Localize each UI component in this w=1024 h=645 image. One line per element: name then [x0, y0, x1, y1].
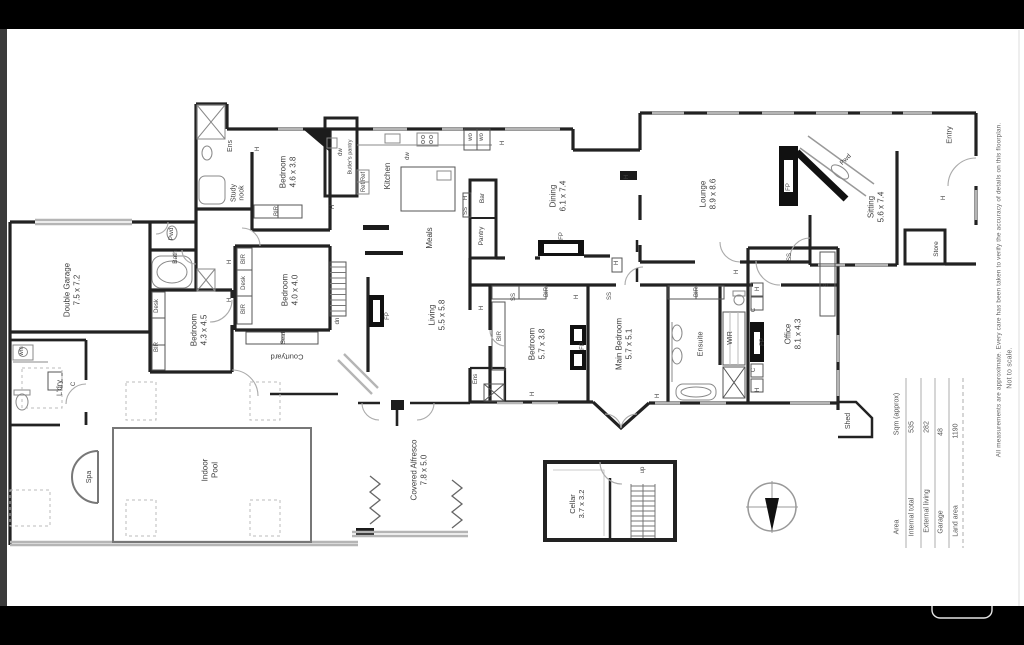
room-label-office: Office8.1 x 4.3 [783, 319, 802, 350]
marker-h: H [227, 298, 233, 302]
north-arrow-icon [746, 481, 798, 533]
room-label-ensuite: Ensuite [696, 331, 705, 356]
scroll-tab [932, 606, 992, 618]
marker-stairs-up: up [640, 467, 646, 474]
area-table-row-value: 535 [909, 421, 916, 433]
marker-ensuite-small: Ens [473, 374, 479, 384]
room-label-bedroom-2: Bedroom4.3 x 4.5 [189, 314, 208, 346]
marker-stairs-down: dn [335, 318, 341, 325]
marker-fireplace: FP [760, 338, 766, 346]
marker-bir: BIR [241, 304, 247, 314]
area-table-row-value: 1190 [953, 423, 960, 438]
marker-h: H [941, 196, 947, 200]
room-label-bedroom-4: Bedroom5.7 x 3.8 [527, 328, 546, 360]
marker-fireplace: FP [580, 342, 586, 350]
room-label-bedroom-1: Bedroom4.6 x 3.8 [278, 156, 297, 188]
marker-h: H [655, 394, 661, 398]
bedroom-corner-wedge [303, 129, 330, 152]
marker-washing-machine: wm [19, 346, 25, 355]
marker-bir: BIR [694, 287, 700, 297]
room-label-lounge: Lounge8.9 x 8.6 [698, 179, 717, 210]
marker-ss: SS [787, 253, 793, 261]
marker-h: H [734, 270, 740, 274]
marker-h: H [463, 196, 469, 200]
area-table-row-label: Internal total [909, 498, 916, 537]
room-label-laundry: L'dry [55, 380, 64, 396]
marker-wall-oven: wo [468, 133, 474, 141]
marker-h: H [330, 205, 336, 209]
marker-bir: BIR [274, 206, 280, 216]
floorplan-screen: Double Garage7.5 x 7.2 Ens Study nook Be… [0, 0, 1024, 645]
room-label-bedroom-3: Bedroom4.0 x 4.0 [280, 274, 299, 306]
marker-h: H [614, 261, 620, 265]
marker-dishwasher: dw [405, 152, 411, 160]
windows [10, 113, 976, 545]
area-table-header-label: Area [894, 520, 901, 535]
area-table-row-value: 282 [924, 421, 931, 433]
marker-h: H [500, 141, 506, 145]
area-table-row-label: External living [924, 489, 931, 533]
marker-storage: S [824, 283, 830, 287]
marker-h: H [624, 175, 630, 179]
marker-h: H [255, 147, 261, 151]
marker-fireplace: FP [786, 183, 792, 191]
room-label-pwd: Pwd [168, 228, 176, 241]
marker-ss: SS [463, 207, 469, 215]
room-label-dining: Dining6.1 x 7.4 [548, 181, 567, 212]
marker-h: H [755, 287, 761, 291]
room-label-entry: Entry [945, 126, 954, 144]
marker-bir: BIR [154, 342, 160, 352]
room-label-indoor-pool: Indoor Pool [200, 455, 219, 485]
marker-cupboard: C [751, 368, 757, 372]
room-label-bath: Bath [172, 250, 180, 263]
disclaimer-text: All measurements are approximate. Every … [996, 123, 1003, 458]
marker-fridge: Ref/Ref [361, 172, 367, 192]
room-label-covered-alfresco: Covered Alfresco7.8 x 5.0 [409, 440, 428, 501]
floorplan-drawing [0, 0, 1024, 645]
room-label-store: Store [933, 241, 941, 257]
marker-desk: Desk [241, 276, 247, 290]
room-label-living: Living5.5 x 5.8 [427, 300, 446, 331]
marker-fireplace: FP [385, 312, 391, 320]
marker-h: H [755, 388, 761, 392]
room-label-bar: Bar [479, 193, 487, 203]
room-label-ens: Ens [227, 140, 235, 152]
marker-desk: Desk [154, 299, 160, 313]
area-table-row-label: Garage [938, 510, 945, 533]
roof-dashed-outlines [10, 368, 280, 536]
marker-ss: SS [511, 293, 517, 301]
room-label-meals: Meals [425, 227, 435, 248]
room-label-kitchen: Kitchen [383, 163, 393, 190]
area-table-row-label: Land area [953, 505, 960, 537]
marker-wall-oven: wo [479, 133, 485, 141]
marker-bir: BIR [241, 254, 247, 264]
marker-h: H [574, 295, 580, 299]
room-label-double-garage: Double Garage7.5 x 7.2 [62, 263, 81, 317]
room-label-sitting: Sitting5.6 x 7.4 [866, 192, 885, 223]
marker-dishwasher: dw [338, 148, 344, 156]
room-label-butlers-pantry: Butler's pantry [348, 140, 355, 175]
room-label-shed: Shed [845, 413, 853, 429]
room-label-wir: WIR [727, 331, 735, 345]
room-label-spa: Spa [86, 471, 94, 483]
marker-h: H [227, 260, 233, 264]
marker-h: H [479, 306, 485, 310]
marker-bir: BIR [497, 331, 503, 341]
marker-bir: BIR [544, 287, 550, 297]
area-table-header-value: Sqm (approx) [894, 393, 901, 435]
room-label-courtyard: Courtyard [271, 353, 304, 362]
room-label-main-bedroom: Main Bedroom5.7 x 5.1 [614, 318, 633, 370]
marker-cupboard: C [71, 382, 77, 386]
pool-and-spa [72, 428, 311, 542]
room-label-cellar: Cellar3.7 x 3.2 [568, 490, 586, 519]
not-to-scale-text: Not to scale. [1007, 347, 1014, 389]
marker-cupboard: C [751, 308, 757, 312]
room-label-study-nook: Study nook [231, 181, 248, 205]
marker-seat: Seat [281, 332, 287, 344]
marker-ss: SS [607, 292, 613, 300]
marker-fireplace: FP [559, 232, 565, 240]
area-table-row-value: 48 [938, 428, 945, 436]
marker-h: H [530, 392, 536, 396]
room-label-pantry: Pantry [478, 227, 486, 246]
